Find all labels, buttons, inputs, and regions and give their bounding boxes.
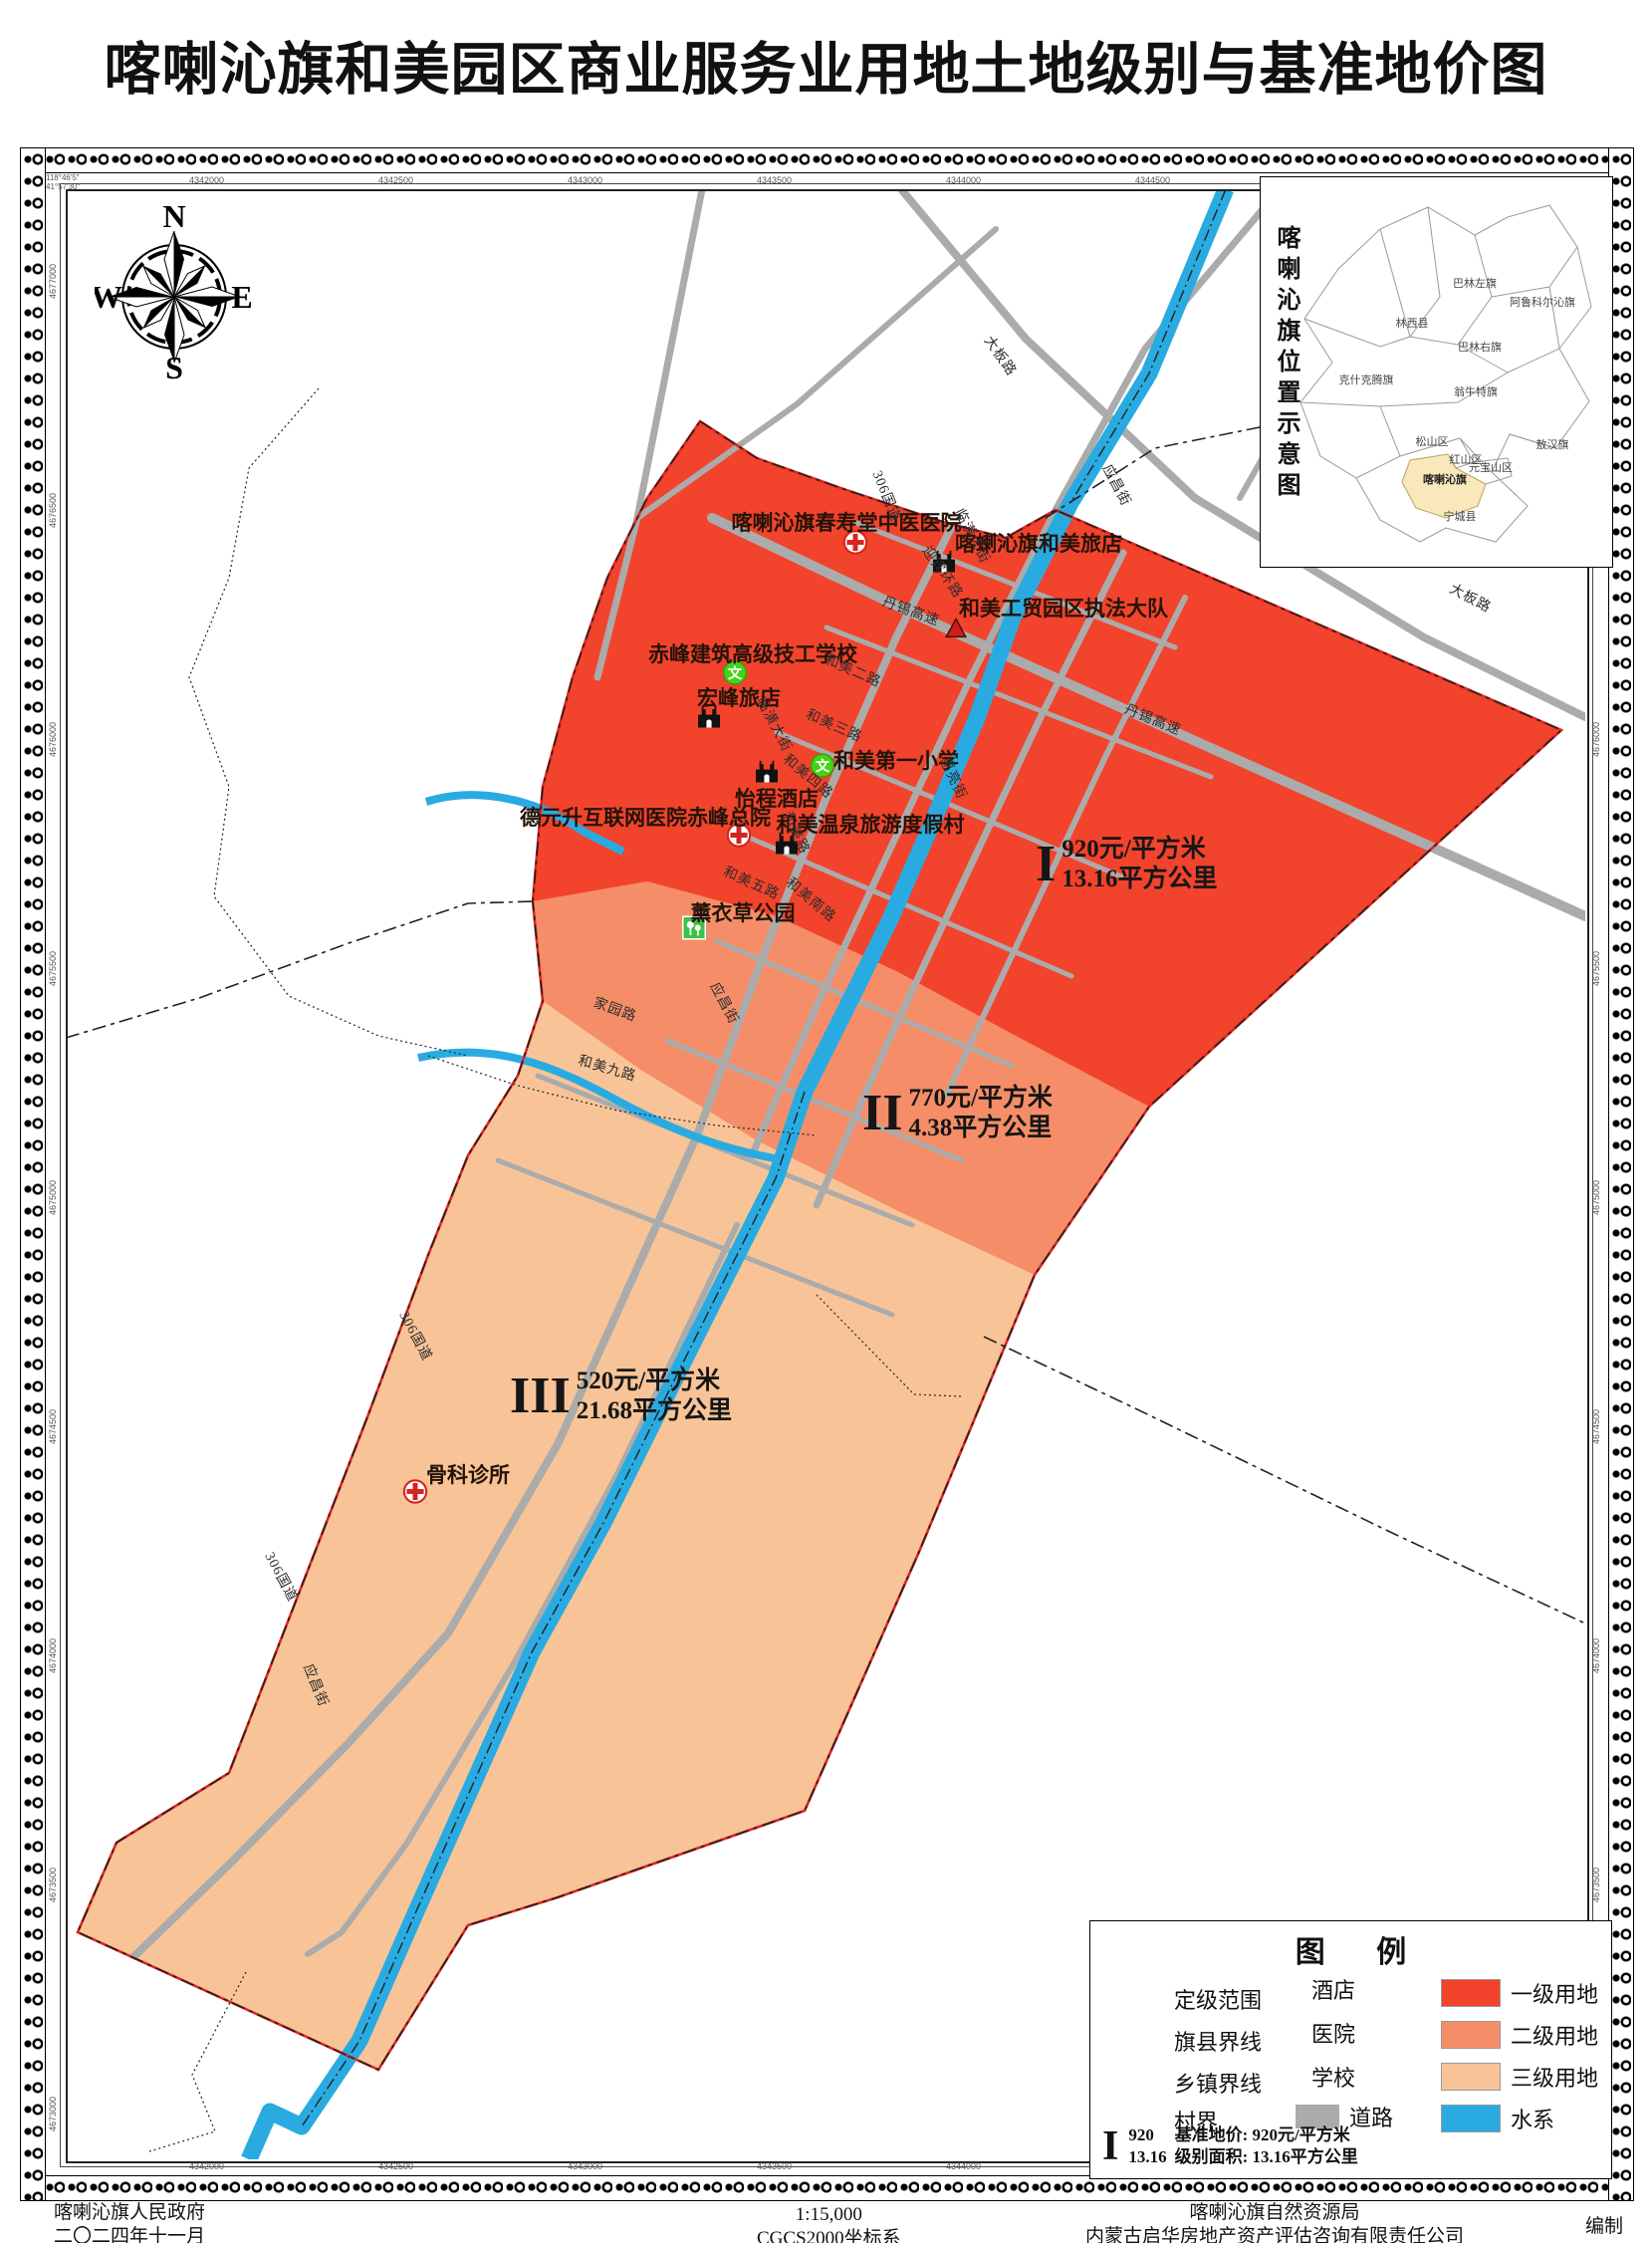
graticule-tick: 4673500 bbox=[48, 1868, 58, 1902]
graticule-tick: 4675500 bbox=[48, 951, 58, 986]
footer-scale: 1:15,000CGCS2000坐标系 bbox=[757, 2203, 901, 2243]
corner-coordinates: 118°46′5″41°57′30″ bbox=[46, 173, 80, 191]
graticule-tick: 4676000 bbox=[48, 722, 58, 757]
graticule-tick: 4343500 bbox=[757, 175, 792, 185]
graticule-tick: 4343000 bbox=[568, 2161, 602, 2171]
map-sheet: 喀喇沁旗和美园区商业服务业用地土地级别与基准地价图 bbox=[0, 0, 1652, 2243]
legend-item-town-line: 乡镇界线 bbox=[1104, 2067, 1262, 2099]
compass-rose: N S W E bbox=[95, 199, 254, 383]
graticule-tick: 4342500 bbox=[378, 175, 413, 185]
legend-box: 图 例 定级范围 旗县界线 乡镇界线 村界 酒店 医院 学校 bbox=[1089, 1920, 1612, 2179]
graticule-tick: 4342000 bbox=[189, 175, 224, 185]
legend-item-water: 水系 bbox=[1441, 2103, 1554, 2134]
compass-e: E bbox=[231, 279, 252, 315]
graticule-tick: 4677000 bbox=[48, 264, 58, 299]
poi-label: 德元升互联网医院赤峰总院 bbox=[520, 802, 771, 832]
inset-region-label: 松山区 bbox=[1416, 433, 1449, 449]
legend-note: I 92013.16 基准地价: 920元/平方米级别面积: 13.16平方公里 bbox=[1102, 2124, 1358, 2168]
inset-region-label: 巴林右旗 bbox=[1458, 339, 1502, 355]
inset-canvas bbox=[1261, 177, 1612, 567]
legend-item-hospital: 医院 bbox=[1301, 2017, 1355, 2049]
legend-item-level2: 二级用地 bbox=[1441, 2019, 1598, 2051]
inset-region-label: 喀喇沁旗 bbox=[1423, 471, 1467, 487]
zone-3-label: III 520元/平方米21.68平方公里 bbox=[510, 1367, 732, 1426]
graticule-tick: 4674000 bbox=[48, 1638, 58, 1673]
graticule-tick: 4344500 bbox=[1135, 175, 1170, 185]
level2-swatch bbox=[1441, 2021, 1501, 2049]
page-title: 喀喇沁旗和美园区商业服务业用地土地级别与基准地价图 bbox=[0, 24, 1652, 106]
zone-1-label: I 920元/平方米13.16平方公里 bbox=[1036, 835, 1218, 894]
inset-region-label: 林西县 bbox=[1396, 315, 1429, 331]
graticule-tick: 4674500 bbox=[1591, 1409, 1601, 1444]
inset-locator-map: 喀喇沁旗位置示意图 巴林左旗阿鲁科尔沁旗林西县巴林右旗克什克腾旗翁牛特旗松山区红… bbox=[1260, 176, 1613, 568]
graticule-tick: 4676500 bbox=[48, 493, 58, 528]
graticule-tick: 4674500 bbox=[48, 1409, 58, 1444]
legend-item-hotel: 酒店 bbox=[1301, 1973, 1355, 2005]
graticule-tick: 4673500 bbox=[1591, 1868, 1601, 1902]
poi-label: 和美工贸园区执法大队 bbox=[959, 593, 1168, 623]
legend-title: 图 例 bbox=[1090, 1927, 1611, 1971]
inset-region-label: 巴林左旗 bbox=[1453, 275, 1497, 291]
footer-compilers: 喀喇沁旗自然资源局内蒙古启华房地产资产评估咨询有限责任公司 bbox=[996, 2201, 1553, 2243]
legend-item-school: 学校 bbox=[1301, 2061, 1355, 2093]
legend-item-level1: 一级用地 bbox=[1441, 1977, 1598, 2009]
graticule-tick: 4344000 bbox=[946, 175, 981, 185]
footer-publisher: 喀喇沁旗人民政府二〇二四年十一月 bbox=[54, 2201, 205, 2243]
legend-item-level3: 三级用地 bbox=[1441, 2061, 1598, 2093]
ornate-border-top bbox=[20, 147, 1634, 173]
inset-region-label: 元宝山区 bbox=[1469, 459, 1513, 475]
graticule-tick: 4674000 bbox=[1591, 1638, 1601, 1673]
graticule-tick: 4675000 bbox=[1591, 1180, 1601, 1215]
legend-item-county-line: 旗县界线 bbox=[1104, 2025, 1262, 2057]
compass-s: S bbox=[165, 350, 183, 383]
level3-swatch bbox=[1441, 2063, 1501, 2091]
compass-n: N bbox=[162, 199, 185, 234]
poi-label: 薰衣草公园 bbox=[691, 897, 796, 927]
hospital-icon bbox=[402, 1479, 428, 1505]
graticule-tick: 4675500 bbox=[1591, 951, 1601, 986]
graticule-tick: 4675000 bbox=[48, 1180, 58, 1215]
inset-region-label: 阿鲁科尔沁旗 bbox=[1510, 294, 1575, 310]
level1-swatch bbox=[1441, 1979, 1501, 2007]
inset-region-label: 敖汉旗 bbox=[1536, 436, 1569, 452]
zone-2-label: II 770元/平方米4.38平方公里 bbox=[862, 1084, 1053, 1143]
compass-w: W bbox=[95, 279, 122, 315]
graticule-tick: 4343500 bbox=[757, 2161, 792, 2171]
water-swatch bbox=[1441, 2105, 1501, 2132]
poi-label: 骨科诊所 bbox=[426, 1459, 510, 1489]
inset-region-label: 翁牛特旗 bbox=[1454, 383, 1498, 399]
poi-label: 喀喇沁旗春寿堂中医医院 bbox=[732, 507, 962, 537]
footer-bianzhi: 编制 bbox=[1585, 2211, 1623, 2238]
graticule-tick: 4673000 bbox=[48, 2097, 58, 2131]
graticule-tick: 4344000 bbox=[946, 2161, 981, 2171]
graticule-tick: 4342000 bbox=[189, 2161, 224, 2171]
inset-region-label: 宁城县 bbox=[1444, 508, 1477, 524]
inset-title: 喀喇沁旗位置示意图 bbox=[1269, 225, 1303, 503]
graticule-tick: 4343000 bbox=[568, 175, 602, 185]
inset-region-label: 克什克腾旗 bbox=[1339, 372, 1394, 387]
graticule-tick: 4342500 bbox=[378, 2161, 413, 2171]
graticule-tick: 4676000 bbox=[1591, 722, 1601, 757]
hotel-icon bbox=[754, 761, 780, 783]
poi-marker-hospital bbox=[402, 1479, 428, 1510]
legend-item-grading-extent: 定级范围 bbox=[1104, 1983, 1262, 2015]
ornate-border-left bbox=[20, 147, 46, 2201]
